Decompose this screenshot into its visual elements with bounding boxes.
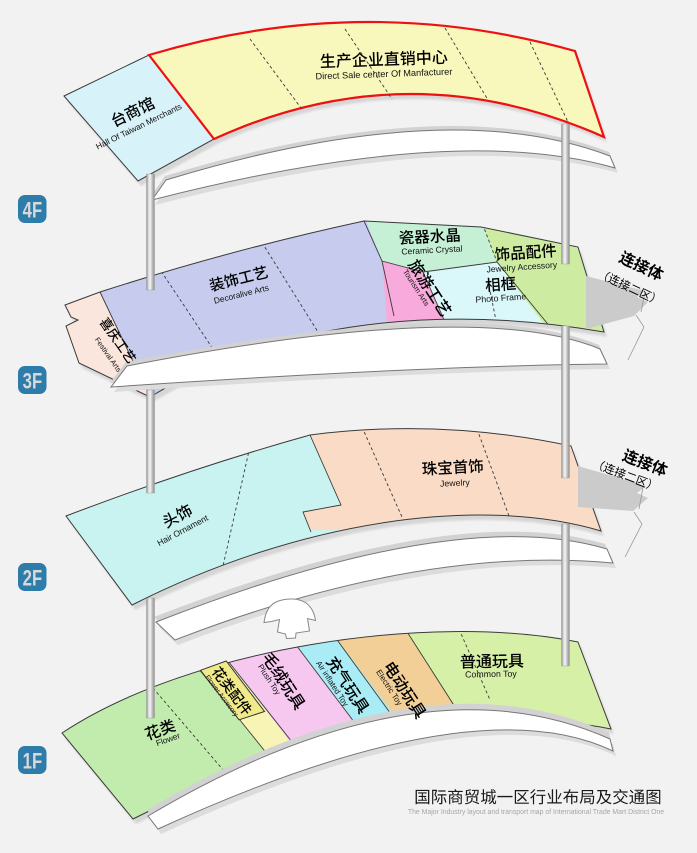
svg-text:1F: 1F [23,749,43,774]
svg-text:2F: 2F [23,566,43,591]
svg-text:Jewelry: Jewelry [440,477,471,489]
svg-text:The Major Industry layout and: The Major Industry layout and transport … [408,809,664,816]
svg-text:Common Toy: Common Toy [465,669,517,680]
svg-text:4F: 4F [23,198,43,223]
svg-text:3F: 3F [23,369,43,394]
